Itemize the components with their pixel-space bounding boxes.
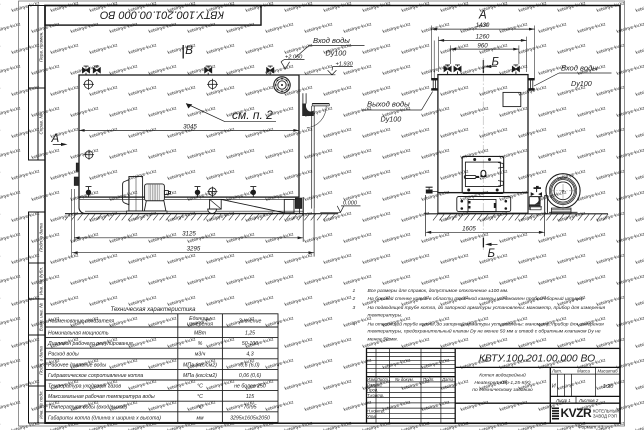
svg-text:не более 250: не более 250	[234, 384, 266, 390]
svg-text:Лит.: Лит.	[551, 369, 562, 374]
svg-text:50-100: 50-100	[242, 341, 258, 347]
svg-text:На отводящей трубе котла ,до з: На отводящей трубе котла ,до запорной ар…	[368, 320, 605, 327]
svg-text:И: И	[552, 384, 556, 390]
svg-text:Б: Б	[492, 56, 500, 68]
svg-text:Взам. инв. №: Взам. инв. №	[38, 303, 43, 331]
svg-text:Котел водогрейный: Котел водогрейный	[479, 372, 526, 379]
svg-text:Лист 1: Лист 1	[555, 398, 571, 403]
svg-text:А: А	[51, 133, 60, 145]
svg-text:1,25: 1,25	[245, 331, 255, 337]
svg-text:°С: °С	[197, 405, 203, 411]
svg-text:3295х1605х2050: 3295х1605х2050	[230, 415, 270, 421]
svg-text:Утв.: Утв.	[367, 414, 377, 419]
svg-text:МВт: МВт	[194, 331, 207, 337]
svg-text:Дата: Дата	[441, 377, 454, 382]
svg-text:Heatexpert-КВр-1,25-К(К): Heatexpert-КВр-1,25-К(К)	[474, 380, 531, 386]
svg-text:Листов 2: Листов 2	[578, 398, 599, 403]
svg-text:Рабочее давление воды: Рабочее давление воды	[48, 362, 106, 368]
svg-text:1: 1	[353, 288, 356, 294]
svg-text:На боковой стенке котла в обла: На боковой стенке котла в области топочн…	[368, 295, 584, 302]
svg-text:по техническому заданию: по техническому заданию	[472, 387, 533, 393]
svg-text:Изм.: Изм.	[367, 377, 376, 382]
svg-text:70/95: 70/95	[244, 405, 257, 411]
svg-text:Значение: Значение	[239, 319, 262, 325]
svg-text:В: В	[185, 45, 193, 57]
svg-text:0.000: 0.000	[343, 201, 358, 207]
svg-text:1:20: 1:20	[603, 384, 615, 390]
svg-text:Лист: Лист	[376, 377, 388, 382]
svg-text:115: 115	[246, 394, 254, 400]
svg-text:KVZR: KVZR	[561, 406, 593, 420]
svg-text:температуры.: температуры.	[368, 313, 403, 318]
svg-text:Вход воды: Вход воды	[313, 36, 350, 45]
svg-text:менее 50 мм.: менее 50 мм.	[368, 336, 398, 342]
svg-text:%: %	[198, 341, 203, 347]
svg-text:Формат А3: Формат А3	[578, 425, 604, 430]
svg-text:КВТУ.100.201.00.000 ВО: КВТУ.100.201.00.000 ВО	[479, 354, 595, 365]
svg-text:Техническая характеристика: Техническая характеристика	[111, 307, 197, 313]
svg-text:3: 3	[353, 305, 356, 311]
svg-text:4,3: 4,3	[246, 352, 253, 358]
svg-text:Номинальная мощность: Номинальная мощность	[48, 331, 109, 337]
svg-text:МПа (кгс/см2): МПа (кгс/см2)	[183, 373, 217, 379]
svg-text:м3/ч: м3/ч	[195, 352, 206, 358]
svg-text:2: 2	[352, 296, 356, 302]
svg-text:МПа (кгс/см2): МПа (кгс/см2)	[183, 362, 217, 368]
svg-text:960: 960	[477, 42, 488, 49]
svg-text:мм: мм	[196, 415, 204, 421]
svg-text:Подп. и дата: Подп. и дата	[38, 346, 43, 375]
svg-text:Температура уходящих газов: Температура уходящих газов	[48, 384, 121, 390]
svg-text:1605: 1605	[462, 225, 476, 232]
svg-text:Dy100: Dy100	[571, 79, 592, 88]
svg-text:Габариты котла (длинна х ширин: Габариты котла (длинна х ширина х высота…	[48, 415, 161, 421]
svg-text:А: А	[478, 10, 487, 22]
svg-text:Подп. и дата: Подп. и дата	[38, 223, 43, 252]
svg-text:Справ. №: Справ. №	[38, 114, 43, 135]
svg-text:температуры, предохранительный: температуры, предохранительный клапан Dу…	[368, 328, 601, 335]
svg-text:4: 4	[353, 321, 356, 327]
svg-text:Перв. примен.: Перв. примен.	[38, 31, 43, 62]
svg-text:Dy100: Dy100	[326, 48, 347, 57]
svg-text:Максимальная рабочая температу: Максимальная рабочая температура воды	[48, 394, 155, 400]
svg-text:Т.контр.: Т.контр.	[367, 393, 384, 398]
svg-text:Гидравлическое сопротивление к: Гидравлическое сопротивление котла	[48, 373, 143, 379]
svg-text:Расход воды: Расход воды	[48, 352, 79, 358]
svg-text:1430: 1430	[476, 22, 490, 29]
svg-text:Масштаб: Масштаб	[597, 369, 618, 374]
svg-text:КВТУ.100.201.00.000 ВО: КВТУ.100.201.00.000 ВО	[99, 9, 224, 21]
svg-text:№ докум.: № докум.	[395, 377, 414, 382]
svg-text:Н.контр.: Н.контр.	[367, 409, 385, 414]
svg-text:Б: Б	[488, 248, 496, 260]
svg-text:1260: 1260	[476, 34, 490, 41]
svg-text:измерения: измерения	[187, 322, 213, 328]
svg-text:3125: 3125	[182, 231, 196, 238]
svg-text:3045: 3045	[183, 123, 197, 130]
svg-text:см. п. 2: см. п. 2	[232, 108, 273, 122]
svg-text:Все размеры для справок, допус: Все размеры для справок, допустимое откл…	[368, 288, 509, 294]
svg-text:+1.930: +1.930	[336, 61, 354, 67]
svg-text:ЗАВОД РЭП: ЗАВОД РЭП	[593, 414, 617, 419]
svg-text:Инв. № подл.: Инв. № подл.	[38, 390, 43, 419]
svg-text:Dy100: Dy100	[381, 114, 402, 123]
svg-text:Разраб.: Разраб.	[367, 382, 383, 387]
svg-text:Вход воды: Вход воды	[561, 64, 598, 73]
svg-text:Подп.: Подп.	[423, 377, 434, 382]
svg-text:°С: °С	[197, 384, 203, 390]
svg-text:На подводящей трубе котла, до: На подводящей трубе котла, до запорной а…	[368, 304, 606, 311]
svg-text:Инв. № дубл.: Инв. № дубл.	[38, 267, 43, 295]
svg-text:°С: °С	[197, 394, 203, 400]
svg-text:Температура воды (вход/выход): Температура воды (вход/выход)	[48, 405, 127, 411]
svg-text:Масса: Масса	[577, 369, 590, 374]
svg-text:0,06 (0,6): 0,06 (0,6)	[239, 373, 261, 379]
svg-text:Наименование показателя: Наименование показателя	[48, 319, 114, 325]
svg-text:Диапазон рабочего регулировани: Диапазон рабочего регулирования	[47, 341, 133, 347]
svg-text:Выход воды: Выход воды	[367, 100, 410, 109]
svg-text:3295: 3295	[187, 246, 201, 253]
svg-text:0,6 (6,0): 0,6 (6,0)	[240, 362, 260, 368]
